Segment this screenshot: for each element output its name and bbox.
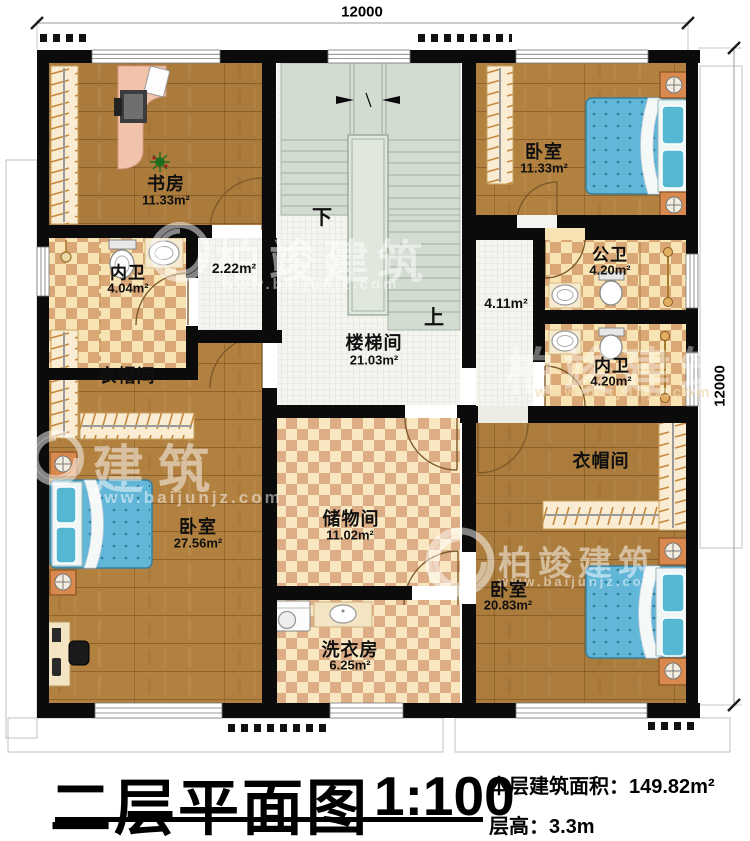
floor-plan-canvas — [0, 0, 750, 841]
floor-height-label: 层高： — [489, 816, 549, 838]
window-top-stair — [328, 50, 410, 63]
dimension-top: 12000 — [341, 5, 383, 22]
room-area-bath-public: 4.20m² — [589, 264, 630, 279]
window-top-study — [92, 50, 220, 63]
room-area-storage: 11.02m² — [326, 529, 374, 544]
floor-plan-page: 柏竣建筑 www.baijunjz.com 柏竣建筑 www.baijunjz.… — [0, 0, 750, 841]
laundry-fixtures — [264, 601, 372, 631]
window-bottom-bedroom-right — [516, 703, 647, 718]
title-divider — [55, 817, 483, 822]
room-area-stairwell: 21.03m² — [350, 354, 398, 369]
room-area-bath-inner-left: 4.04m² — [107, 282, 148, 297]
floor-height-value: 3.3m — [549, 816, 595, 838]
watermark-url: www.baijunjz.com — [88, 488, 283, 508]
storage-floor — [277, 418, 460, 586]
room-area-corridor: 2.22m² — [212, 261, 256, 277]
room-label-cloakroom-right: 衣帽间 — [573, 451, 630, 471]
room-area-bath-inner-right: 4.20m² — [590, 375, 631, 390]
room-label-bath-inner-left: 内卫 — [110, 263, 146, 282]
window-left-bath — [37, 247, 49, 296]
room-area-bedroom-left: 27.56m² — [174, 537, 222, 552]
room-label-bath-inner-right: 内卫 — [594, 356, 630, 375]
page-title: 二层平面图 — [50, 758, 370, 841]
window-bottom-bedroom-left — [95, 703, 222, 718]
bed-top-right — [586, 98, 688, 194]
room-label-bath-public: 公卫 — [592, 245, 628, 264]
dimension-right: 12000 — [713, 365, 730, 407]
stair-up-label: 上 — [424, 307, 444, 329]
room-area-bedroom-top-right: 11.33m² — [520, 162, 568, 177]
room-area-hall: 4.11m² — [484, 296, 528, 312]
room-label-storage: 储物间 — [323, 509, 380, 529]
room-area-bedroom-bottom-right: 20.83m² — [484, 599, 532, 614]
room-label-bedroom-top-right: 卧室 — [525, 142, 563, 162]
floor-area-label: 本层建筑面积： — [489, 776, 629, 798]
floor-area-value: 149.82m² — [629, 776, 715, 798]
window-top-bedroom — [516, 50, 648, 63]
room-label-stairwell: 楼梯间 — [346, 333, 403, 353]
window-right-bath-public — [686, 254, 698, 308]
room-area-study: 11.33m² — [142, 194, 190, 209]
watermark-url: www.baijunjz.com — [222, 276, 399, 293]
floor-area-line: 本层建筑面积：149.82m² — [489, 770, 715, 799]
stair-down-label: 下 — [312, 207, 332, 229]
bedroom-top-right-wardrobe — [487, 66, 513, 184]
window-bottom-laundry — [330, 703, 403, 718]
room-label-bedroom-left: 卧室 — [179, 517, 217, 537]
room-label-cloakroom-left: 衣帽间 — [99, 366, 156, 386]
room-area-laundry: 6.25m² — [329, 659, 370, 674]
study-wardrobe — [51, 66, 78, 224]
room-label-study: 书房 — [147, 174, 185, 194]
floor-height-line: 层高：3.3m — [489, 810, 595, 839]
plant — [150, 152, 170, 172]
